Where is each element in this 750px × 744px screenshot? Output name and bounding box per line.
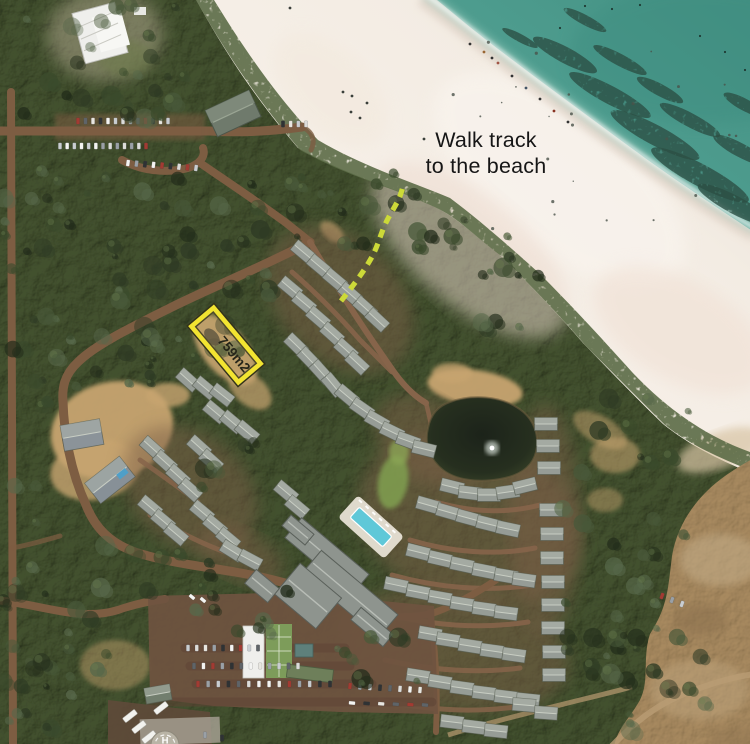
scenery: H (0, 0, 750, 744)
aerial-map-image: H 759m2 Walk track to the beach (0, 0, 750, 744)
map-canvas: H 759m2 (0, 0, 750, 744)
svg-text:H: H (162, 736, 169, 744)
